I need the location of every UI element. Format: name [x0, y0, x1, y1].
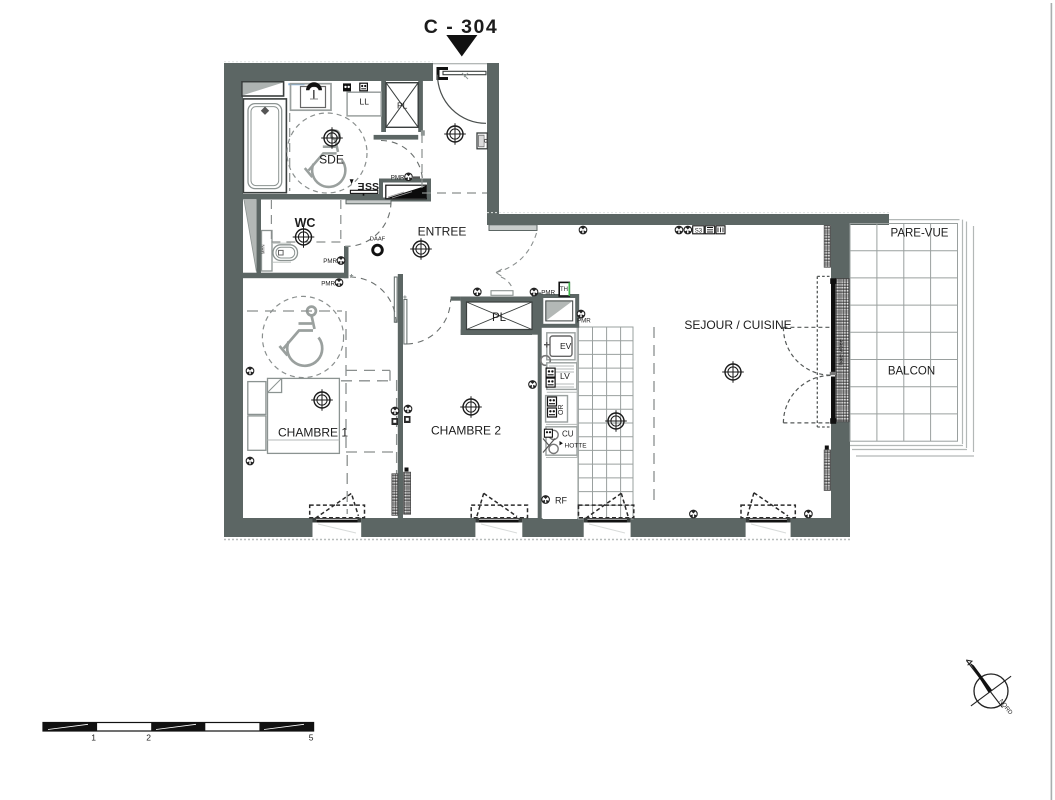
svg-text:PMR: PMR: [391, 174, 405, 181]
svg-text:EV: EV: [560, 341, 572, 351]
svg-text:CU: CU: [562, 430, 574, 439]
svg-text:PARE-VUE: PARE-VUE: [891, 228, 949, 240]
svg-text:CHAMBRE 1: CHAMBRE 1: [278, 426, 348, 440]
svg-text:HOTTE: HOTTE: [565, 443, 588, 450]
svg-text:BALCON: BALCON: [888, 366, 935, 378]
svg-text:PMR: PMR: [577, 318, 591, 325]
svg-text:CHAMBRE 2: CHAMBRE 2: [431, 424, 501, 438]
svg-text:baie vitree: baie vitree: [839, 339, 845, 364]
svg-text:5: 5: [309, 733, 314, 743]
svg-text:1: 1: [91, 733, 96, 743]
svg-text:RF: RF: [555, 496, 567, 506]
svg-text:2: 2: [146, 733, 151, 743]
svg-text:S3: S3: [695, 228, 703, 234]
svg-text:MHN: MHN: [261, 244, 266, 254]
svg-text:SDE: SDE: [319, 153, 344, 167]
svg-text:PL: PL: [492, 312, 507, 324]
svg-text:PL: PL: [397, 101, 408, 111]
svg-text:LL: LL: [360, 97, 370, 107]
svg-text:DAAF: DAAF: [370, 237, 386, 243]
svg-text:C - 304: C - 304: [424, 16, 498, 38]
svg-text:PMR: PMR: [323, 258, 337, 265]
svg-text:TH: TH: [560, 287, 568, 293]
svg-text:PMR: PMR: [321, 280, 335, 287]
svg-text:ENTREE: ENTREE: [418, 225, 467, 239]
svg-text:PMR: PMR: [541, 289, 555, 296]
svg-text:OR: OR: [558, 405, 565, 416]
svg-text:LV: LV: [560, 371, 570, 381]
svg-text:WC: WC: [295, 216, 316, 230]
svg-text:SEJOUR / CUISINE: SEJOUR / CUISINE: [684, 318, 791, 332]
